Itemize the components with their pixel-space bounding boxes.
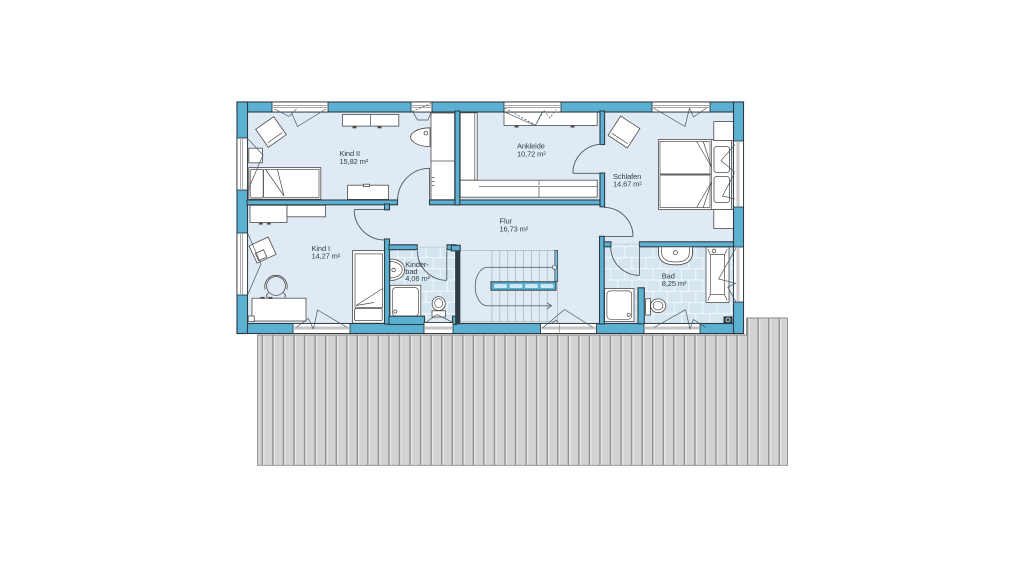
svg-text:14,27 m²: 14,27 m² [312, 252, 341, 261]
svg-text:10,72 m²: 10,72 m² [517, 149, 546, 158]
svg-text:15,82 m²: 15,82 m² [340, 157, 369, 166]
svg-text:8,25 m²: 8,25 m² [662, 279, 687, 288]
svg-text:14,67 m²: 14,67 m² [613, 180, 642, 189]
svg-text:4,06 m²: 4,06 m² [405, 274, 430, 283]
svg-text:16,73 m²: 16,73 m² [500, 224, 529, 233]
